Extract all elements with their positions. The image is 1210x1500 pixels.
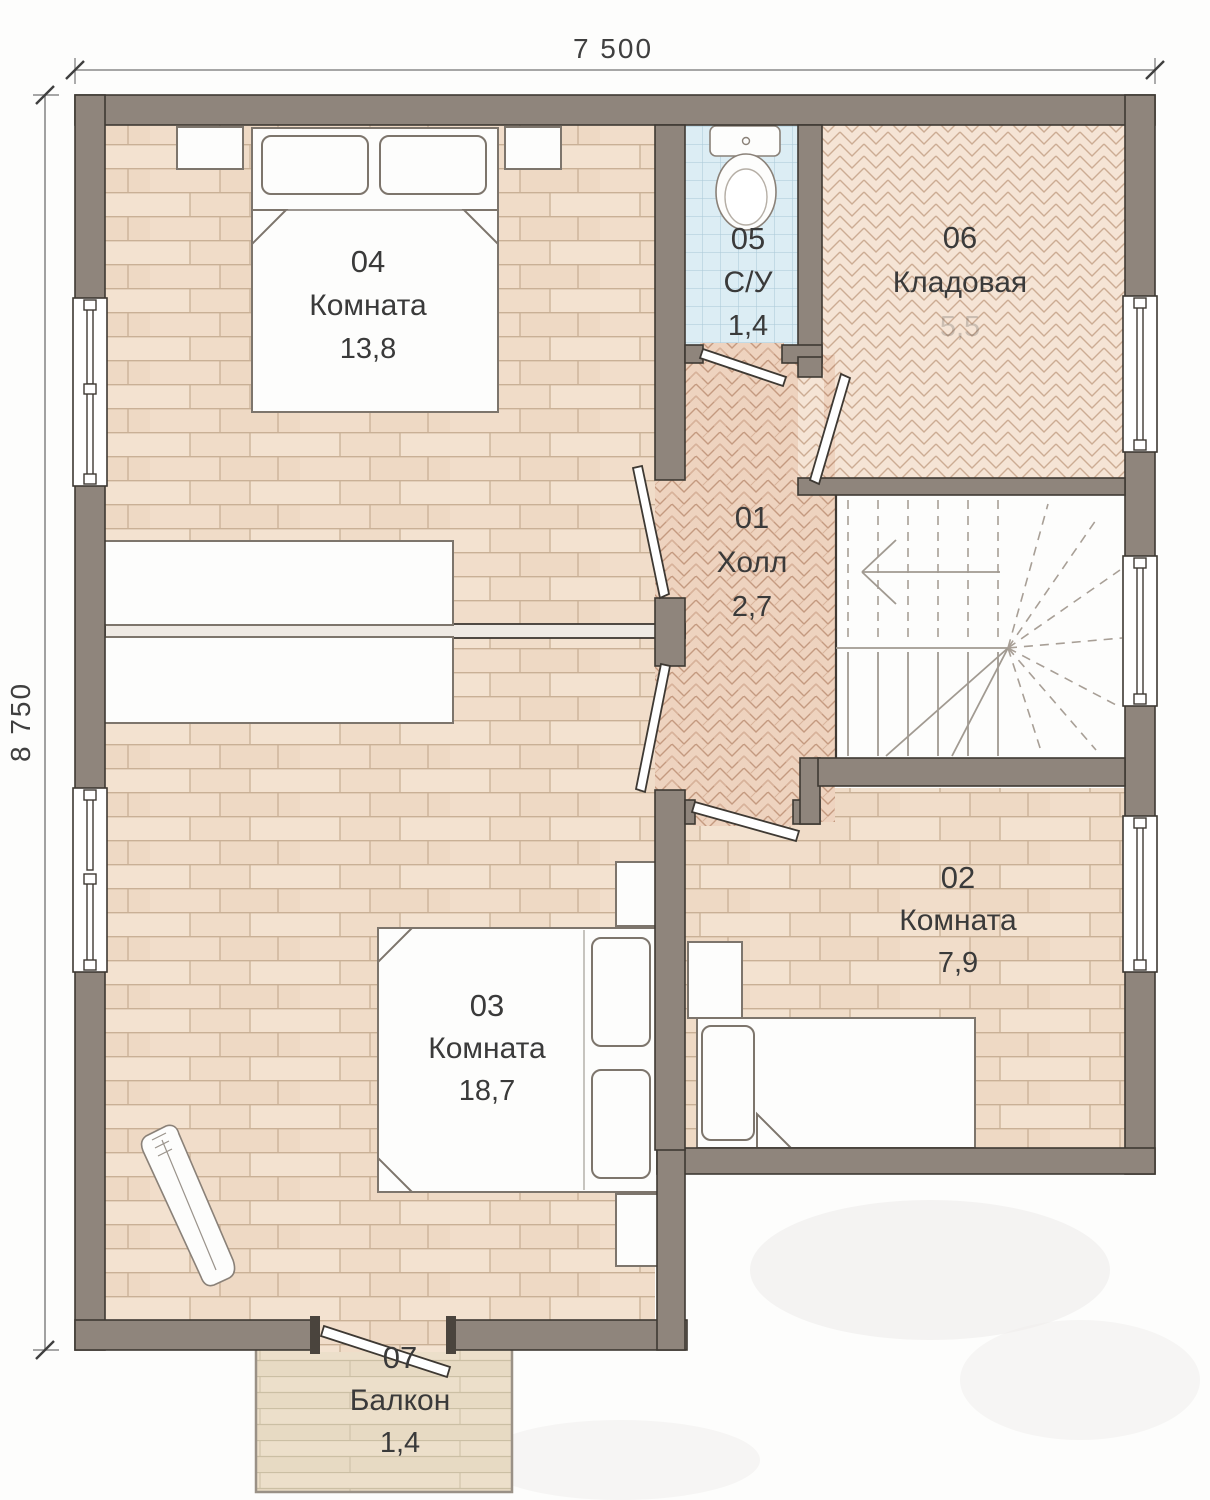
dimension-height-label: 8 750: [5, 682, 36, 762]
room-06-number: 06: [943, 220, 977, 255]
floor-storage-06: [822, 125, 1125, 480]
window-room-02: [1123, 816, 1157, 972]
wall-bottom-right: [657, 1148, 1155, 1174]
room-07-area: 1,4: [380, 1427, 420, 1459]
nightstand: [505, 127, 561, 169]
nightstand: [177, 127, 243, 169]
wall-bathroom-right: [798, 125, 822, 357]
balcony-door-jamb: [310, 1316, 320, 1354]
floor-plan-canvas: 7 500 8 750: [0, 0, 1210, 1500]
pillow: [262, 136, 368, 194]
dimension-top: 7 500: [66, 33, 1164, 84]
toilet-tank: [710, 126, 780, 156]
wall-left: [75, 95, 105, 1350]
room-05-name: С/У: [723, 266, 773, 299]
wall-stairs-room02: [818, 758, 1125, 786]
room-04-name: Комната: [309, 289, 427, 322]
room-01-number: 01: [735, 500, 769, 535]
room-05-number: 05: [731, 221, 765, 256]
room-02-area: 7,9: [938, 947, 978, 979]
room-03-area: 18,7: [459, 1075, 515, 1107]
window-stairwell: [1123, 556, 1157, 706]
room-04-area: 13,8: [340, 333, 396, 365]
wall-top: [75, 95, 1155, 125]
wardrobe-room-03: [103, 637, 453, 723]
room-07-number: 07: [383, 1340, 417, 1375]
toilet-bowl-inner: [725, 169, 767, 225]
window-room-04: [73, 298, 107, 486]
room-01-name: Холл: [717, 546, 788, 579]
pillow: [592, 938, 650, 1046]
room-04-number: 04: [351, 244, 385, 279]
wardrobe-room-04: [103, 541, 453, 625]
wall-storage-stub: [798, 357, 822, 377]
wall-notch-vertical: [657, 1148, 685, 1350]
staircase: [835, 494, 1125, 760]
room-05-area: 1,4: [728, 310, 768, 342]
dimension-width-label: 7 500: [573, 33, 653, 64]
pillow: [702, 1026, 754, 1140]
wall-storage-bottom: [798, 478, 1125, 495]
room-03-name: Комната: [428, 1032, 546, 1065]
wardrobe-room-02: [688, 942, 742, 1018]
window-room-03: [73, 788, 107, 972]
room-03-number: 03: [470, 988, 504, 1023]
wall-connector: [800, 758, 820, 824]
balcony-door-jamb: [446, 1316, 456, 1354]
room-07-name: Балкон: [350, 1384, 451, 1417]
wall-bathroom-bottom-stub: [685, 345, 703, 363]
pillow: [380, 136, 486, 194]
pillow: [592, 1070, 650, 1178]
wall-main-vertical: [655, 598, 685, 666]
room-06-name: Кладовая: [893, 266, 1027, 299]
floor-plan-page: 7 500 8 750: [0, 0, 1210, 1500]
wall-main-vertical: [655, 790, 685, 1150]
wall-main-vertical: [655, 125, 685, 480]
room-01-area: 2,7: [732, 591, 772, 623]
room-02-number: 02: [941, 860, 975, 895]
dimension-left: 8 750: [5, 86, 59, 1359]
room-06-area: 5,5: [940, 311, 980, 343]
room-02-name: Комната: [899, 904, 1017, 937]
window-storage-06: [1123, 296, 1157, 452]
